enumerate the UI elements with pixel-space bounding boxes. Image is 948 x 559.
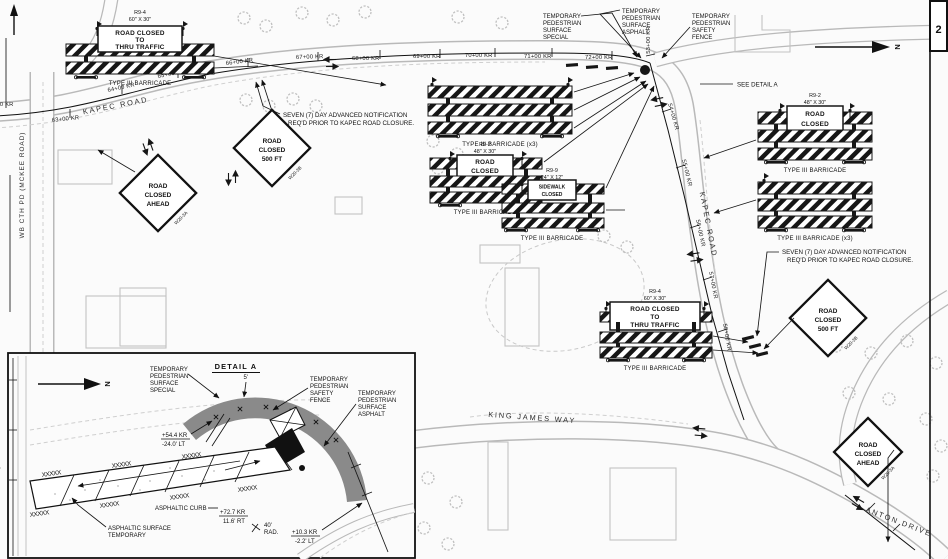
note-line: REQ'D PRIOR TO KAPEC ROAD CLOSURE. [787,257,913,264]
callout-line: ASPHALT [358,412,385,418]
callout-line: SAFETY [310,391,333,397]
sign-line: AHEAD [147,201,170,208]
callout-line: SURFACE [358,405,386,411]
station-offset-line: +10.3 KR [292,530,318,536]
sign-designation: R9-4 [134,10,146,16]
sign-designation: R9-2 [809,93,821,99]
station-label: 67+00 KR [296,54,324,61]
sign-line: CLOSED [145,192,172,199]
callout-line: TEMPORARY [150,367,188,373]
see-detail-a-note: SEE DETAIL A [700,82,778,89]
sign-line: ROAD [475,159,495,166]
sheet-number: 2 [935,24,941,36]
station-offset-line: +72.7 KR [220,510,246,516]
sign-line: ROAD [263,138,282,145]
callout-line: PEDESTRIAN [358,398,396,404]
sign-size: 60" X 30" [129,17,151,23]
sign-line: CLOSED [259,147,286,154]
station-label: 71+00 KR [524,54,552,60]
detail-a-title: DETAIL A [215,362,258,371]
sign-line: THRU TRAFFIC [630,322,679,329]
callout-line: SPECIAL [543,35,569,41]
plan-drawing: 62+00 KR 63+00 KR 64+00 KR 65+00 KR 66+0… [0,0,948,559]
callout-line: SURFACE [150,381,178,387]
station-label: 69+00 KR [413,54,441,60]
callout-line: TEMPORARY [622,9,660,15]
station-label: 72+00 KR [585,55,613,61]
station-label: 70+00 KR [465,53,493,59]
sign-line: CLOSED [855,451,882,458]
north-arrow-top-left [10,4,18,35]
station-offset-line: -2.2' LT [295,539,315,545]
callout-line: ASPHALTIC SURFACE [108,526,171,532]
sign-designation: R9-2 [479,142,491,148]
callout-line: PEDESTRIAN [310,384,348,390]
station-label: 68+00 KR [352,56,380,62]
sign-line: CLOSED [542,192,563,198]
sign-line: SIDEWALK [539,185,566,191]
sign-size: 48" X 30" [474,149,496,155]
sign-line: ROAD CLOSED [115,30,165,37]
sign-line: THRU TRAFFIC [115,44,164,51]
barricade-type-label: TYPE III BARRICADE (x3) [777,236,853,242]
callout-line: TEMPORARY [358,391,396,397]
sign-line: ROAD [149,183,168,190]
north-label: N [103,381,112,386]
callout-line: SAFETY [692,28,715,34]
road-closed-500ft-sign-west: ROAD CLOSED 500 FT W20-3B [234,80,310,186]
sign-designation: R9-9 [546,168,558,174]
callout-line: ASPHALTIC CURB [155,506,207,512]
station-offset-line: +54.4 KR [162,433,188,439]
sign-line: CLOSED [815,317,842,324]
detail-a-inset: DETAIL A N TEMPORARY PEDESTRIAN SURFACE … [0,353,415,558]
sign-line: AHEAD [857,460,880,467]
station-label: 62+00 KR [0,102,14,108]
note-line: SEE DETAIL A [737,82,778,89]
callout-line: FENCE [692,35,712,41]
callout-line: TEMPORARY [108,533,146,539]
dimension-label: 5' [244,375,249,381]
callout-line: TEMPORARY [543,14,581,20]
callout-line: SURFACE [622,23,650,29]
barricade-type-label: TYPE III BARRICADE [784,168,847,174]
sign-line: TO [135,37,144,44]
barricade-assembly-r9-2-east: R9-2 48" X 30" ROAD CLOSED TYPE III BARR… [704,93,872,174]
callout-line: PEDESTRIAN [692,21,730,27]
callout-line: PEDESTRIAN [622,16,660,22]
callout-line: PEDESTRIAN [150,374,188,380]
sign-line: CLOSED [471,168,499,175]
sign-line: ROAD [859,442,878,449]
sign-size: 48" X 30" [804,100,826,106]
traffic-control-plan-sheet: 62+00 KR 63+00 KR 64+00 KR 65+00 KR 66+0… [0,0,948,559]
barricade-type-label: TYPE III BARRICADE [521,236,584,242]
callout-line: TEMPORARY [692,14,730,20]
sign-line: CLOSED [801,121,829,128]
station-offset-line: -24.0' LT [162,442,185,448]
note-line: SEVEN (7) DAY ADVANCED NOTIFICATION [283,112,407,119]
sign-size: 60" X 30" [644,296,666,302]
north-label: N [893,44,902,49]
callout-line: SURFACE [543,28,571,34]
callout-line: FENCE [310,398,330,404]
sign-line: 500 FT [262,156,282,163]
wb-cth-pd-label: WB CTH PD (MCKEE ROAD) [19,132,26,239]
station-offset-line: 11.6' RT [223,519,245,525]
note-line: SEVEN (7) DAY ADVANCED NOTIFICATION [782,249,906,256]
road-closed-500ft-sign-east: ROAD CLOSED 500 FT W20-3B [764,280,866,356]
station-label: 63+00 KR [52,115,80,124]
barricade-type-label: TYPE III BARRICADE [624,366,687,372]
callout-line: ASPHALT [622,30,649,36]
callout-line: 40' [264,523,272,529]
sign-line: TO [650,314,659,321]
barricade-assembly-x3-east: TYPE III BARRICADE (x3) [714,173,872,242]
sign-line: ROAD CLOSED [630,306,680,313]
callout-line: RAD. [264,530,279,536]
note-line: REQ'D PRIOR TO KAPEC ROAD CLOSURE. [288,120,414,127]
road-closed-ahead-sign-west: ROAD CLOSED AHEAD W20-3A [98,150,196,231]
callout-line: PEDESTRIAN [543,21,581,27]
barricade-type-label: TYPE III BARRICADE (x3) [462,142,538,148]
sign-line: ROAD [819,308,838,315]
sign-line: ROAD [805,111,825,118]
callout-line: TEMPORARY [310,377,348,383]
sign-designation: R9-4 [649,289,661,295]
sign-line: 500 FT [818,326,838,333]
barricade-type-label: TYPE III BARRICADE [109,81,172,87]
callout-line: SPECIAL [150,388,176,394]
